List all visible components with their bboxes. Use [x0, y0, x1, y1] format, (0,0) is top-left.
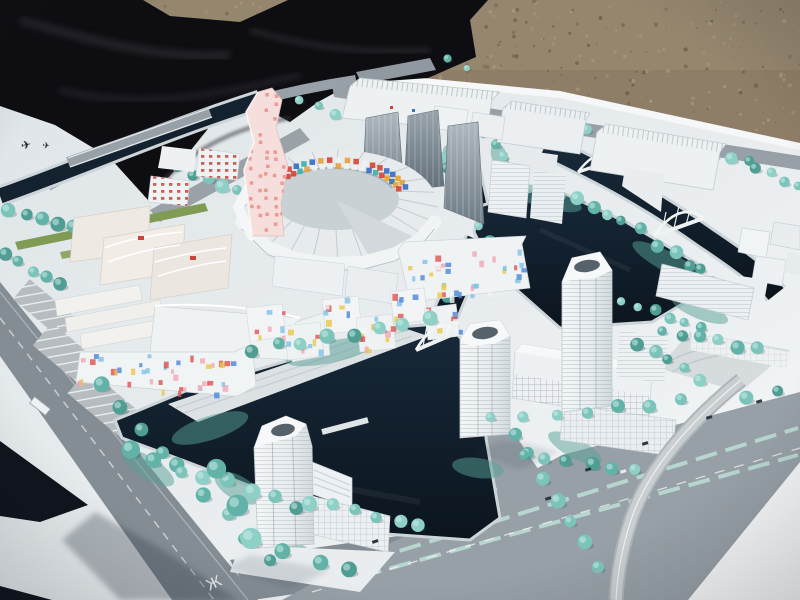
photo-vignette: [0, 0, 800, 600]
photo-of-architecture-scale-model: ✈ ✈: [0, 0, 800, 600]
scene-canvas: ✈ ✈: [0, 0, 800, 600]
